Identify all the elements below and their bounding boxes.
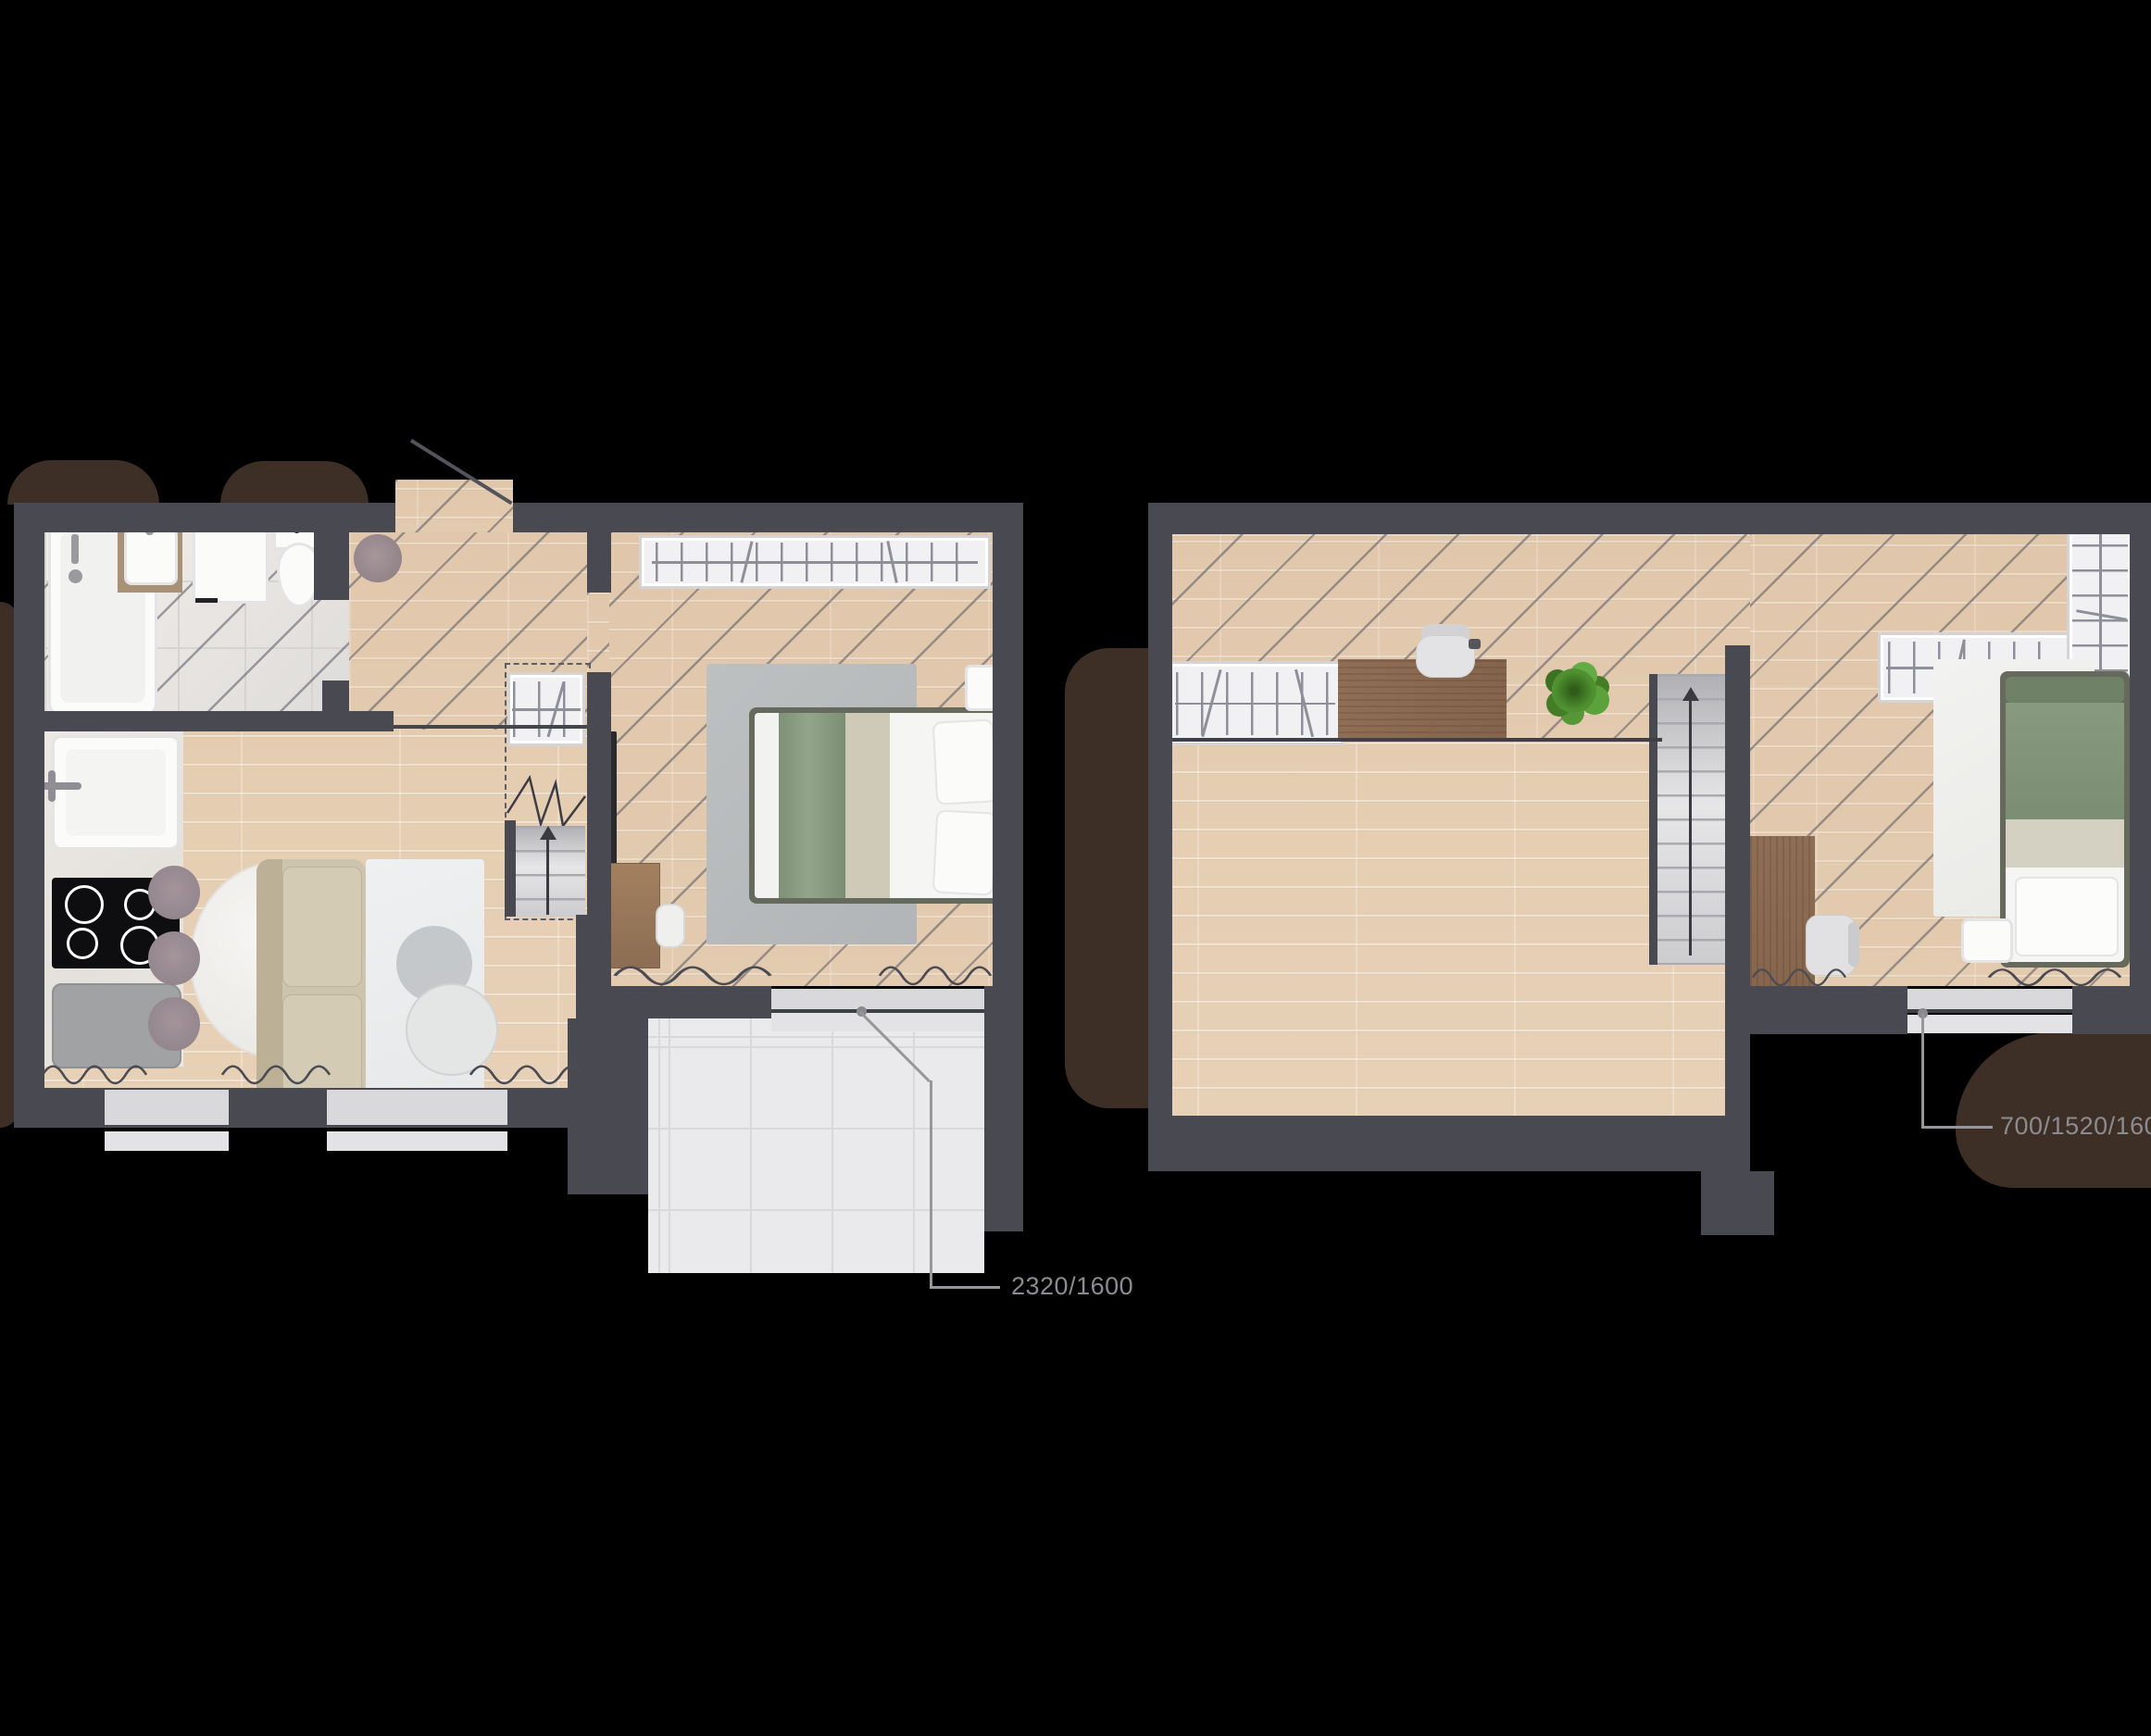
bedroom-window-icon — [1907, 989, 2072, 1009]
kitchen-faucet-icon — [41, 782, 81, 790]
closet-hangers — [656, 543, 974, 581]
sink-basin — [66, 749, 166, 836]
stair-side-wall — [1649, 674, 1657, 965]
single-bed-icon — [2000, 671, 2130, 968]
wall-right — [993, 503, 1023, 986]
washing-machine-handle — [195, 598, 218, 603]
bed-green-blanket — [2006, 703, 2124, 819]
dining-chair-icon — [148, 866, 200, 919]
burner-icon — [65, 885, 104, 924]
stair-arrow-line — [1689, 700, 1692, 955]
studio-wardrobe-hangers-icon — [1167, 661, 1344, 745]
pillow-icon — [932, 718, 998, 805]
bed-folded-blanket — [2006, 819, 2124, 868]
shrub-icon — [7, 460, 159, 505]
chair-armrest — [1469, 639, 1481, 649]
stair-arrow-line — [546, 839, 549, 915]
leader-line — [1921, 1014, 1924, 1128]
bedroom-window-sill — [1907, 1015, 2072, 1033]
shrub-icon — [220, 461, 369, 505]
dimension-label-upper-window: 700/1520/1600 — [2000, 1112, 2151, 1141]
side-table-icon — [406, 983, 498, 1076]
dining-chair-icon — [148, 997, 200, 1051]
bed-green-blanket — [779, 713, 845, 898]
studio-lower-floor — [1170, 740, 1725, 1116]
wall-bedroom-bottom — [576, 986, 771, 1018]
leader-line — [930, 1286, 1000, 1289]
leader-line — [1921, 1126, 1993, 1129]
potted-plant-icon — [1552, 668, 1596, 713]
window-wave-icon — [1753, 967, 1845, 985]
window-wave-icon — [222, 1063, 330, 1083]
vanity-sink-icon — [124, 528, 178, 585]
desk-chair-back — [1848, 922, 1859, 967]
entry-threshold — [395, 480, 513, 532]
window-wave-icon — [1989, 967, 2120, 985]
burner-icon — [67, 928, 98, 959]
shrub-icon — [1065, 648, 1153, 1108]
window-icon — [105, 1090, 229, 1125]
bathtub-faucet-icon — [71, 534, 79, 564]
floor-plan-canvas: 2320/1600 700/1520/1600 — [0, 0, 2151, 1736]
wall-stair-connector — [576, 915, 597, 986]
window-wave-icon — [470, 1063, 583, 1083]
bathtub-drain-icon — [69, 569, 82, 583]
window-sill — [327, 1131, 507, 1151]
terrace-floor — [648, 1018, 984, 1273]
wall — [14, 503, 44, 1128]
wall-divider — [1725, 645, 1750, 1116]
stair-arrow-head-icon — [1682, 687, 1699, 701]
wall-terrace-corner — [568, 1018, 648, 1194]
tv-console-icon — [610, 863, 660, 968]
shrub-icon — [1956, 1032, 2151, 1188]
window-wave-icon — [880, 964, 991, 984]
pillow-icon — [932, 809, 998, 895]
loft-edge-line — [1157, 738, 1662, 742]
wall-bathroom-door-stub — [314, 514, 349, 600]
bed-scrunched-blanket — [2006, 677, 2124, 703]
kitchen-sink-icon — [52, 735, 180, 850]
wall-top — [1148, 503, 2151, 534]
wall-right — [2130, 503, 2151, 1034]
window-sill — [105, 1131, 229, 1151]
wall-left — [1148, 503, 1172, 1171]
wall-bedroom-bottom — [1725, 986, 1907, 1034]
hall-floor-edge-line — [394, 725, 587, 729]
double-bed-icon — [749, 707, 1005, 904]
bedroom-window-mullion — [1907, 1009, 2072, 1013]
hall-closet-hangers-icon — [507, 672, 585, 746]
bedroom-wardrobe-hangers-icon — [639, 535, 991, 589]
stair-side-wall — [505, 820, 516, 917]
wall-window-pier — [984, 986, 1023, 1018]
nightstand-icon — [1961, 918, 2013, 963]
wall-bottom — [1148, 1116, 1750, 1171]
terrace-window-icon — [771, 989, 984, 1009]
wall-bedroom-bottom — [2072, 986, 2151, 1034]
leader-line — [930, 1080, 932, 1288]
dimension-label-ground-window: 2320/1600 — [1011, 1272, 1133, 1301]
wall-right-extension — [984, 1018, 1023, 1231]
sofa-cushion — [282, 867, 362, 987]
wall-living-bottom — [14, 1088, 595, 1128]
window-icon — [327, 1090, 507, 1125]
bed-folded-blanket — [845, 713, 890, 898]
stool-icon — [656, 904, 685, 948]
stair-break-line — [507, 776, 585, 830]
window-wave-icon — [615, 964, 770, 984]
entry-rug-icon — [354, 534, 402, 582]
window-wave-icon — [43, 1063, 146, 1083]
stair-arrow-head-icon — [540, 826, 557, 840]
wall-step — [1701, 1171, 1774, 1235]
bed-foot-sheet — [755, 713, 779, 898]
pillow-icon — [2015, 877, 2119, 956]
office-chair-icon — [1416, 635, 1475, 678]
bedroom-door-threshold — [587, 593, 611, 672]
kitchen-faucet-knob — [48, 770, 56, 802]
dining-chair-icon — [148, 931, 200, 985]
wall-bedroom-stub — [587, 503, 611, 593]
wall-bathroom-bottom — [14, 711, 394, 731]
